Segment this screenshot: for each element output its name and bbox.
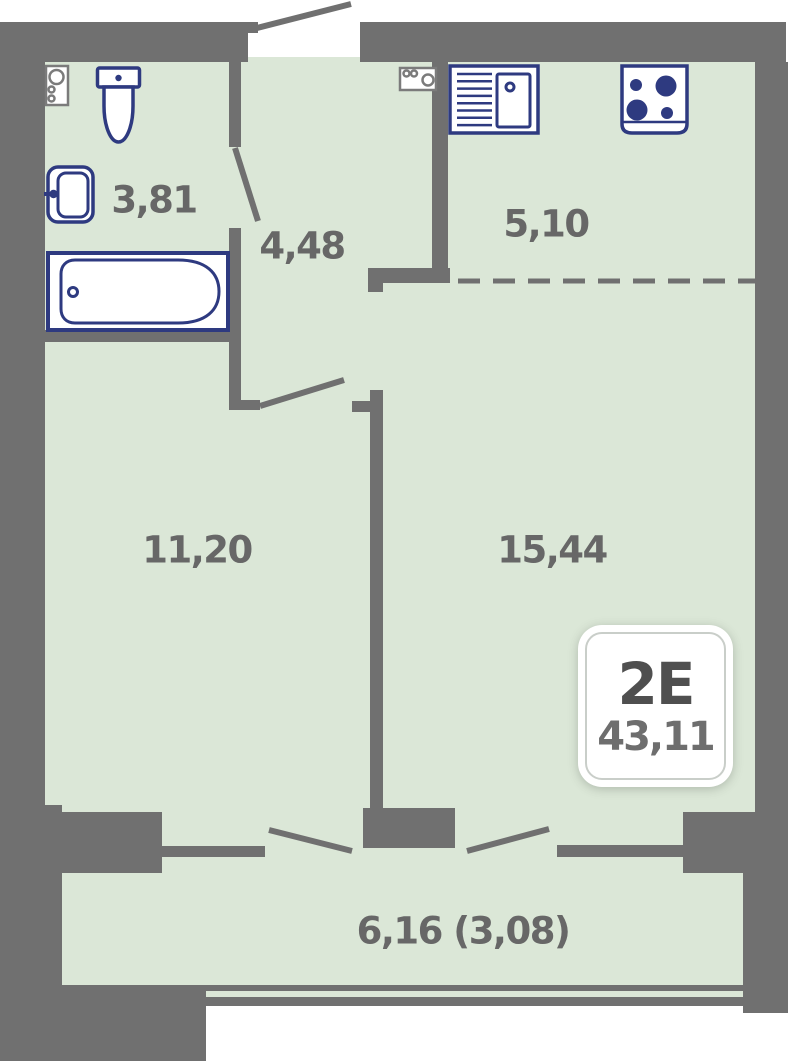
wall-hallway-living-stub (368, 283, 383, 292)
wall-kitchen-hallway (432, 62, 448, 270)
wall-block-bottom-left (0, 985, 206, 1061)
wall-center-balcony-block (363, 808, 455, 848)
living-area-label: 15,44 (497, 532, 607, 569)
wall-bathroom-bottom (45, 330, 236, 342)
wall-hallway-living-top (368, 268, 450, 283)
unit-type-label: 2E (618, 655, 694, 713)
floor-entrance-threshold (248, 57, 360, 62)
wall-left (0, 22, 45, 805)
unit-badge: 2E 43,11 (578, 625, 733, 787)
kitchen-area-label: 5,10 (503, 206, 588, 243)
window-sill-left (162, 846, 265, 857)
wall-right (755, 62, 788, 812)
wall-bedroom-balcony-block (45, 812, 162, 873)
bedroom-area-label: 11,20 (142, 532, 252, 569)
balcony-glazing-inner-line (206, 997, 743, 1006)
wall-top-right (360, 22, 786, 62)
hallway-area-label: 4,48 (259, 228, 344, 265)
bathroom-area-label: 3,81 (111, 182, 196, 219)
wall-block-bottom-right (683, 812, 753, 873)
wall-bathroom-upper (229, 62, 241, 147)
wall-top-left (0, 22, 248, 62)
wall-bedroom-living (370, 390, 383, 808)
floor-plan: 3,81 4,48 5,10 11,20 15,44 6,16 (3,08) 2… (0, 0, 800, 1061)
entrance-door-swing-icon (253, 4, 351, 29)
door-jamb-living (352, 401, 372, 412)
wall-bathroom-lower (229, 228, 241, 410)
unit-total-area-label: 43,11 (597, 717, 714, 757)
door-jamb-bedroom (241, 400, 260, 410)
unit-badge-frame: 2E 43,11 (585, 632, 726, 780)
entrance-door-jamb (248, 22, 258, 33)
balcony-area-label: 6,16 (3,08) (357, 913, 570, 950)
window-sill-right (557, 845, 683, 857)
